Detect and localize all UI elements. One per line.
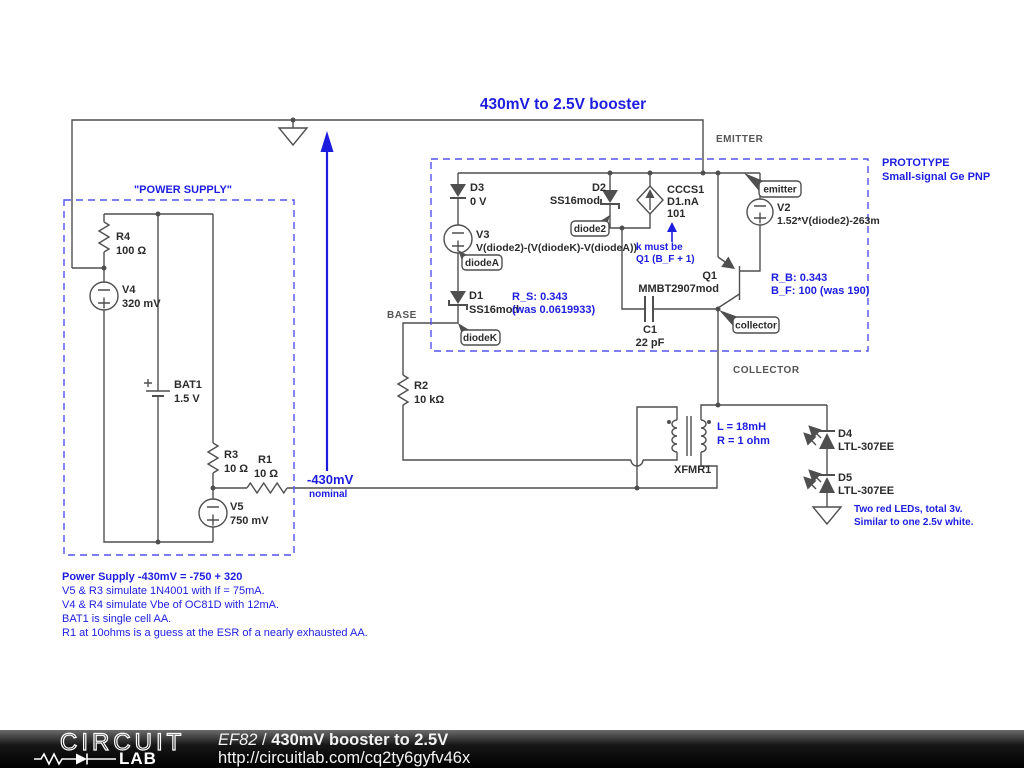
bat1-value: 1.5 V — [174, 393, 200, 405]
doc-separator: / — [262, 731, 267, 749]
power-supply-box-label: "POWER SUPPLY" — [134, 184, 232, 196]
q1-name: Q1 — [702, 270, 717, 282]
prototype-label-2: Small-signal Ge PNP — [882, 171, 990, 183]
cccs1-note-2: Q1 (B_F + 1) — [636, 254, 695, 265]
resistor-diode-logo-icon — [34, 752, 118, 766]
footer-doc-info: EF82 / 430mV booster to 2.5V http://circ… — [218, 731, 470, 767]
v5-value: 750 mV — [230, 515, 269, 527]
v3-value: V(diode2)-(V(diodeK)-V(diodeA)) — [476, 242, 637, 254]
transformer-xfmr1[interactable]: XFMR1 L = 18mH R = 1 ohm — [667, 416, 770, 476]
notes-line-4: R1 at 10ohms is a guess at the ESR of a … — [62, 627, 368, 639]
d5-value: LTL-307EE — [838, 485, 894, 497]
notes-line-2: V4 & R4 simulate Vbe of OC81D with 12mA. — [62, 599, 279, 611]
bat1-name: BAT1 — [174, 379, 202, 391]
node-voltage-value: -430mV — [307, 472, 354, 487]
ground-symbol-top[interactable] — [279, 128, 307, 145]
diode-d2[interactable]: D2 SS16mod — [550, 182, 619, 209]
current-source-cccs1[interactable]: CCCS1 D1.nA 101 — [637, 184, 704, 220]
tag-emitter[interactable]: emitter — [744, 173, 801, 197]
r3-name: R3 — [224, 449, 238, 461]
led-note-1: Two red LEDs, total 3v. — [854, 504, 963, 515]
cccs1-value: D1.nA — [667, 196, 699, 208]
resistor-r4[interactable]: R4 100 Ω — [99, 222, 146, 257]
r3-value: 10 Ω — [224, 463, 248, 475]
tag-diodek[interactable]: diodeK — [458, 323, 500, 345]
d2-value: SS16mod — [550, 195, 600, 207]
xfmr1-note-1: L = 18mH — [717, 421, 766, 433]
d2-name: D2 — [592, 182, 606, 194]
diode-d3[interactable]: D3 0 V — [450, 182, 487, 208]
prototype-label-1: PROTOTYPE — [882, 157, 950, 169]
diode-d1[interactable]: D1 SS16mod R_S: 0.343 (was 0.0619933) — [449, 290, 596, 316]
notes-line-3: BAT1 is single cell AA. — [62, 613, 171, 625]
notes-line-1: V5 & R3 simulate 1N4001 with If = 75mA. — [62, 585, 265, 597]
notes-annotation[interactable]: Power Supply -430mV = -750 + 320 V5 & R3… — [62, 571, 368, 639]
xfmr1-note-2: R = 1 ohm — [717, 435, 770, 447]
tag-emitter-label: emitter — [763, 185, 796, 196]
ground-symbol-leds[interactable] — [813, 507, 841, 524]
cccs1-note-1: k must be — [636, 242, 683, 253]
v3-name: V3 — [476, 229, 489, 241]
c1-name: C1 — [643, 324, 657, 336]
voltage-source-v2[interactable]: V2 1.52*V(diode2)-263m — [747, 199, 880, 227]
doc-author: EF82 — [218, 731, 257, 749]
v5-name: V5 — [230, 501, 243, 513]
d1-note-1: R_S: 0.343 — [512, 291, 568, 303]
c1-value: 22 pF — [636, 337, 665, 349]
r1-name: R1 — [258, 454, 272, 466]
schematic-canvas[interactable]: 430mV to 2.5V booster — [0, 0, 1024, 730]
junction-dots — [102, 118, 721, 545]
net-label-collector: COLLECTOR — [733, 365, 800, 376]
cccs1-gain: 101 — [667, 208, 685, 220]
schematic-title[interactable]: 430mV to 2.5V booster — [480, 96, 646, 113]
tag-diode2-label: diode2 — [574, 224, 607, 235]
led-d5[interactable]: D5 LTL-307EE — [805, 471, 894, 497]
q1-note-2: B_F: 100 (was 190) — [771, 285, 870, 297]
circuitlab-footer: CIRCUIT LAB EF82 / 430mV booster to 2.5V… — [0, 730, 1024, 768]
v4-value: 320 mV — [122, 298, 161, 310]
voltage-source-v4[interactable]: V4 320 mV — [90, 282, 161, 310]
q1-value: MMBT2907mod — [638, 283, 719, 295]
battery-bat1[interactable]: BAT1 1.5 V — [144, 379, 202, 405]
net-label-emitter: EMITTER — [716, 134, 764, 145]
node-voltage-annotation[interactable]: -430mV nominal — [307, 472, 354, 500]
led-note-2: Similar to one 2.5v white. — [854, 517, 974, 528]
tag-diodek-label: diodeK — [463, 333, 498, 344]
resistor-r3[interactable]: R3 10 Ω — [208, 443, 248, 475]
cccs1-name: CCCS1 — [667, 184, 704, 196]
r4-value: 100 Ω — [116, 245, 146, 257]
net-label-base: BASE — [387, 310, 417, 321]
resistor-r1[interactable]: R1 10 Ω — [247, 454, 287, 493]
tag-diodea-label: diodeA — [465, 258, 499, 269]
notes-heading: Power Supply -430mV = -750 + 320 — [62, 571, 242, 583]
v2-name: V2 — [777, 202, 790, 214]
d1-name: D1 — [469, 290, 483, 302]
tag-diode2[interactable]: diode2 — [571, 215, 610, 236]
prototype-box[interactable]: PROTOTYPE Small-signal Ge PNP — [431, 157, 990, 351]
d4-name: D4 — [838, 428, 853, 440]
r4-name: R4 — [116, 231, 131, 243]
circuitlab-logo-lab: LAB — [119, 749, 157, 768]
circuitlab-schematic-page: 430mV to 2.5V booster — [0, 0, 1024, 768]
r2-name: R2 — [414, 380, 428, 392]
q1-note-1: R_B: 0.343 — [771, 272, 827, 284]
r1-value: 10 Ω — [254, 468, 278, 480]
v4-name: V4 — [122, 284, 136, 296]
footer-url[interactable]: http://circuitlab.com/cq2ty6gyfv46x — [218, 749, 470, 767]
node-voltage-qualifier: nominal — [309, 489, 348, 500]
voltage-source-v5[interactable]: V5 750 mV — [199, 499, 269, 527]
v2-value: 1.52*V(diode2)-263m — [777, 215, 880, 227]
capacitor-c1[interactable]: C1 22 pF — [636, 296, 665, 349]
xfmr1-name: XFMR1 — [674, 464, 711, 476]
blue-arrow-annotation[interactable] — [321, 131, 334, 471]
d5-name: D5 — [838, 472, 852, 484]
led-d4[interactable]: D4 LTL-307EE — [805, 427, 894, 453]
r2-value: 10 kΩ — [414, 394, 444, 406]
tag-collector-label: collector — [735, 321, 777, 332]
tag-collector[interactable]: collector — [719, 310, 779, 333]
resistor-r2[interactable]: R2 10 kΩ — [398, 375, 444, 406]
d3-name: D3 — [470, 182, 484, 194]
doc-title: 430mV booster to 2.5V — [271, 731, 448, 749]
d4-value: LTL-307EE — [838, 441, 894, 453]
footer-doc-line: EF82 / 430mV booster to 2.5V — [218, 731, 470, 749]
transistor-q1[interactable]: Q1 MMBT2907mod R_B: 0.343 B_F: 100 (was … — [638, 225, 869, 308]
d1-note-2: (was 0.0619933) — [512, 304, 596, 316]
power-supply-box[interactable]: "POWER SUPPLY" — [64, 184, 294, 555]
led-note-annotation[interactable]: Two red LEDs, total 3v. Similar to one 2… — [854, 504, 974, 528]
d3-value: 0 V — [470, 196, 487, 208]
